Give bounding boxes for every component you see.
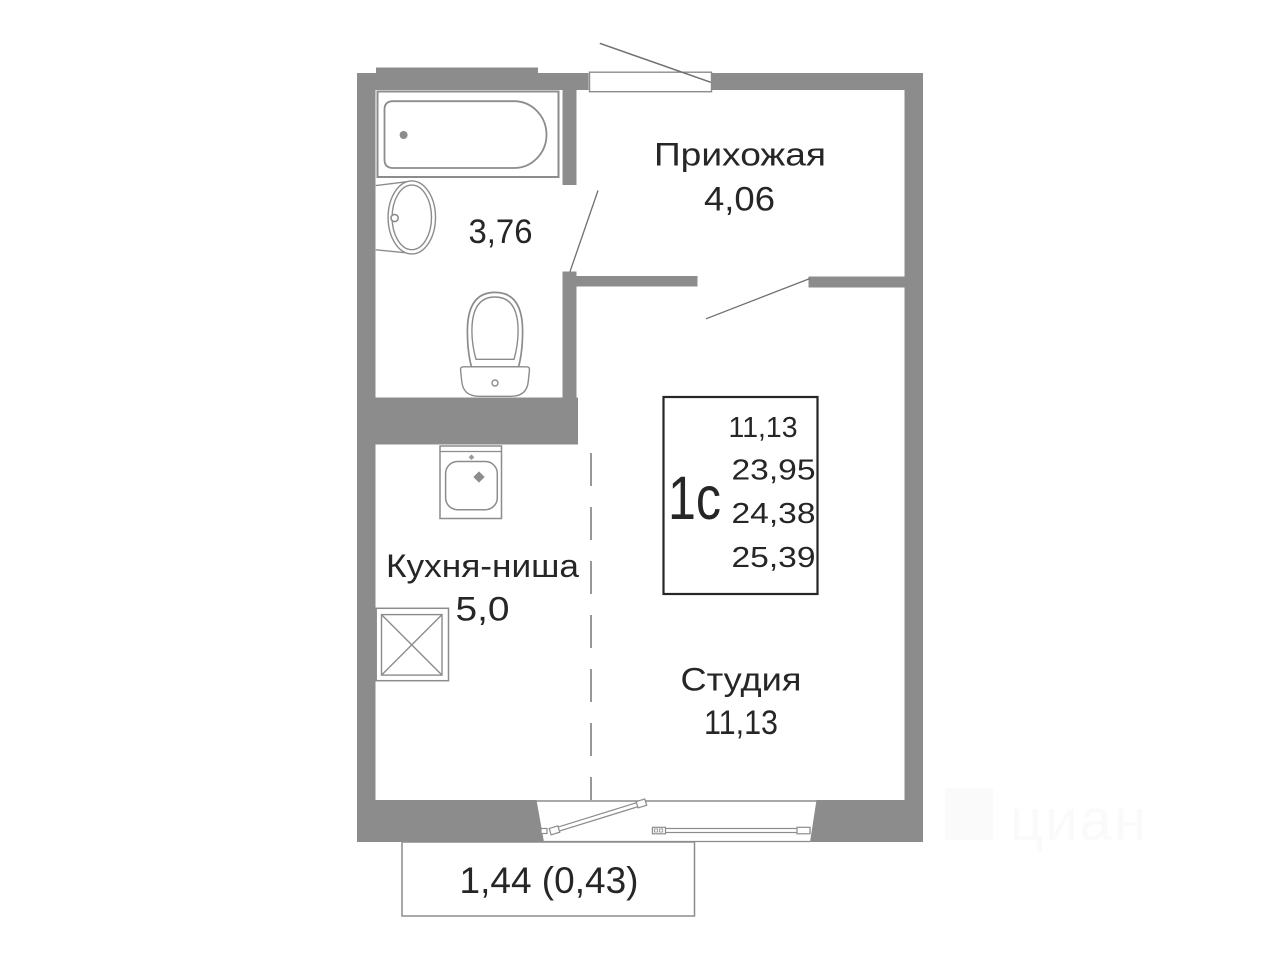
svg-text:1с: 1с — [668, 464, 721, 532]
svg-text:24,38: 24,38 — [732, 498, 816, 530]
svg-text:4,06: 4,06 — [704, 181, 775, 219]
svg-text:11,13: 11,13 — [729, 412, 798, 444]
svg-text:Прихожая: Прихожая — [654, 137, 826, 173]
svg-text:25,39: 25,39 — [732, 542, 816, 574]
svg-text:23,95: 23,95 — [732, 455, 816, 487]
svg-text:11,13: 11,13 — [704, 704, 778, 742]
svg-text:Кухня-ниша: Кухня-ниша — [386, 548, 579, 584]
svg-text:Студия: Студия — [681, 662, 802, 698]
svg-text:3,76: 3,76 — [469, 213, 533, 251]
svg-text:циан: циан — [1010, 788, 1148, 853]
svg-text:5,0: 5,0 — [456, 591, 510, 629]
svg-text:1,44 (0,43): 1,44 (0,43) — [460, 860, 639, 901]
